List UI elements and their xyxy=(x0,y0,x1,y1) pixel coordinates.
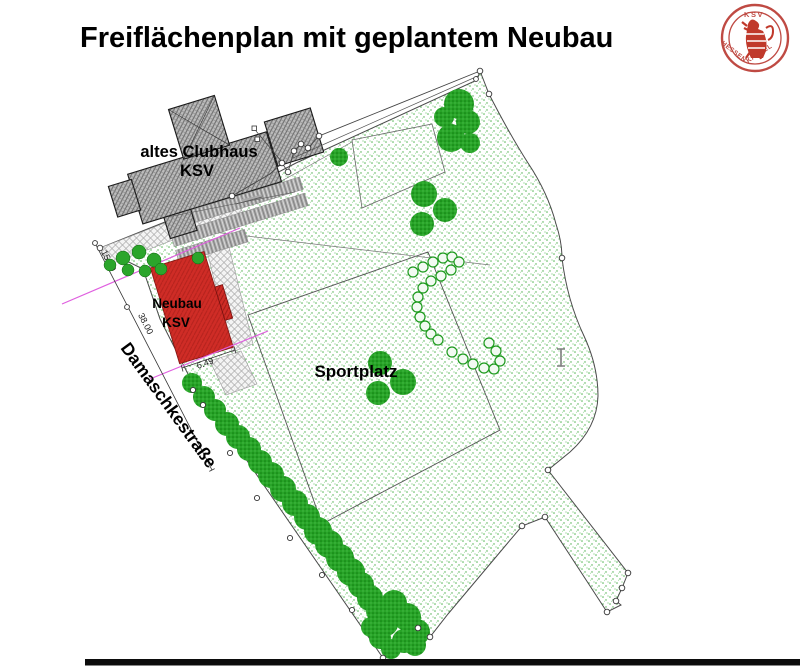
dimension-label-38: 38.00 xyxy=(136,311,155,336)
bottom-border-bar xyxy=(85,659,800,666)
logo-text-top: KSV xyxy=(744,10,764,19)
neubau-label-1: Neubau xyxy=(152,296,202,311)
site-plan-drawing: altes Clubhaus KSV Neubau KSV 15.00 38.0… xyxy=(0,0,800,668)
screenshot-root: Freiflächenplan mit geplantem Neubau xyxy=(0,0,800,668)
page-title: Freiflächenplan mit geplantem Neubau xyxy=(80,22,613,55)
old-clubhouse-label-2: KSV xyxy=(180,162,214,180)
old-clubhouse-label-1: altes Clubhaus xyxy=(140,143,257,161)
ksv-logo: KSV HESSEN KASSEL xyxy=(720,5,788,71)
sportplatz-label: Sportplatz xyxy=(314,362,397,381)
neubau-label-2: KSV xyxy=(162,315,190,330)
survey-square xyxy=(255,137,260,142)
survey-square xyxy=(252,126,257,131)
